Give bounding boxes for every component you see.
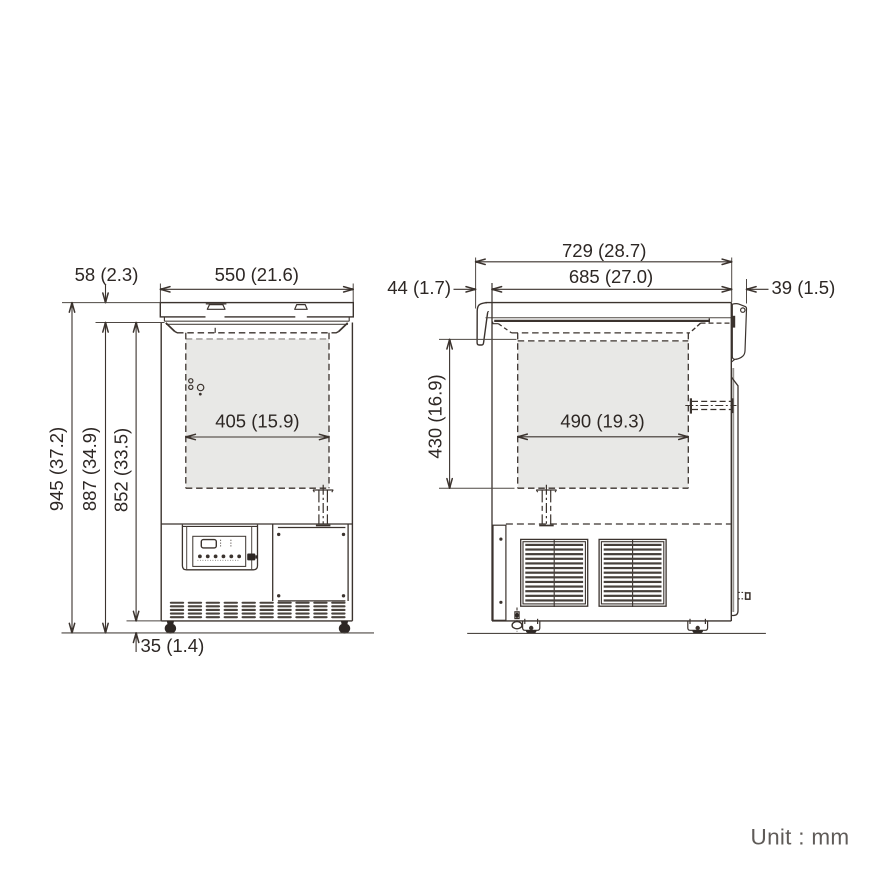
- svg-text:729 (28.7): 729 (28.7): [562, 240, 646, 261]
- svg-text:39 (1.5): 39 (1.5): [772, 277, 836, 298]
- svg-text:887 (34.9): 887 (34.9): [79, 427, 100, 511]
- svg-text:405 (15.9): 405 (15.9): [215, 411, 299, 432]
- svg-text:35 (1.4): 35 (1.4): [141, 635, 205, 656]
- svg-text:Unit : mm: Unit : mm: [751, 825, 850, 850]
- svg-text:44 (1.7): 44 (1.7): [387, 277, 451, 298]
- svg-text:852 (33.5): 852 (33.5): [111, 428, 132, 512]
- svg-text:550 (21.6): 550 (21.6): [215, 264, 299, 285]
- svg-text:430 (16.9): 430 (16.9): [425, 374, 446, 458]
- svg-text:685 (27.0): 685 (27.0): [569, 266, 653, 287]
- svg-text:490 (19.3): 490 (19.3): [560, 411, 644, 432]
- svg-text:58 (2.3): 58 (2.3): [75, 264, 139, 285]
- svg-text:945 (37.2): 945 (37.2): [46, 427, 67, 511]
